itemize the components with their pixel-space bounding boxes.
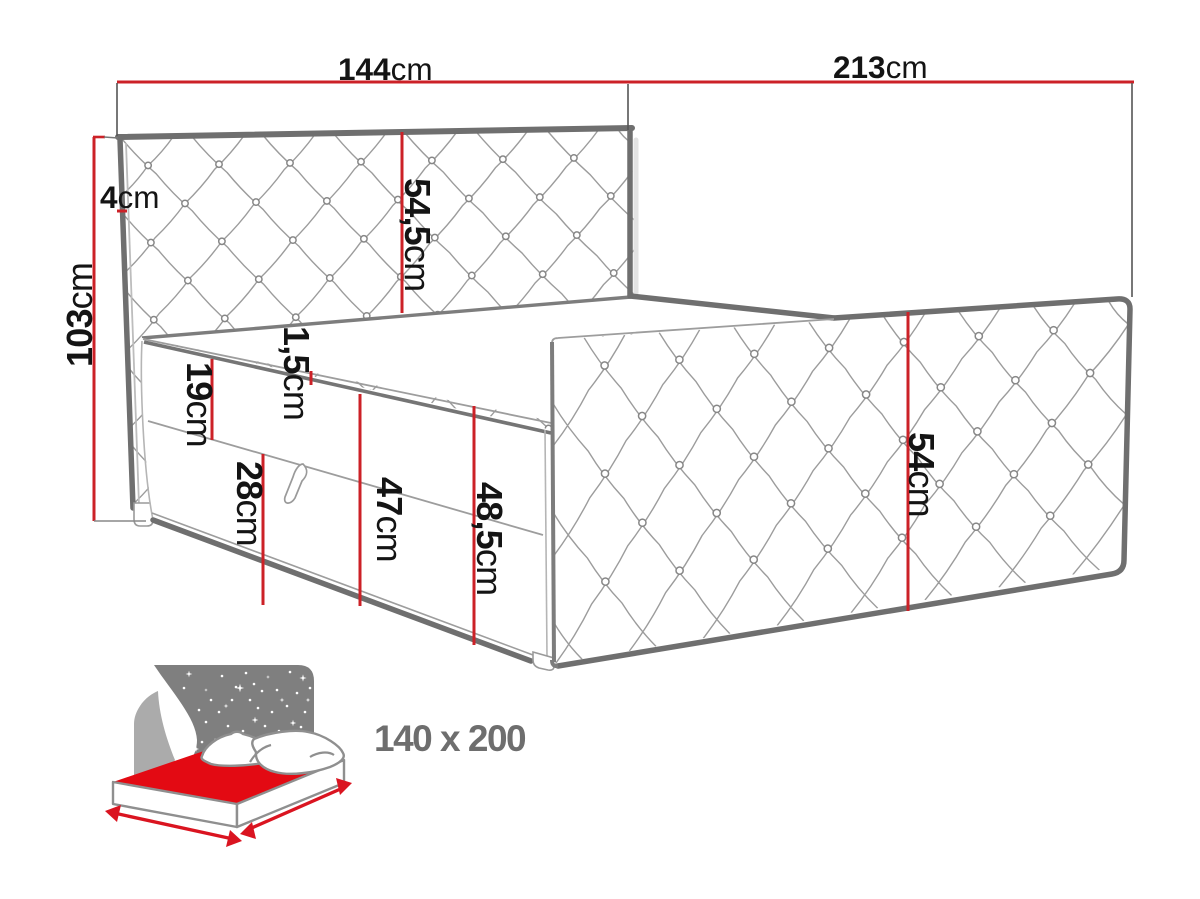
svg-text:48,5cm: 48,5cm — [469, 482, 510, 595]
svg-text:4cm: 4cm — [100, 179, 160, 215]
svg-text:19cm: 19cm — [179, 362, 220, 447]
svg-text:47cm: 47cm — [369, 477, 410, 562]
svg-text:28cm: 28cm — [229, 461, 270, 546]
svg-text:103cm: 103cm — [59, 263, 100, 367]
svg-text:54cm: 54cm — [901, 432, 942, 517]
svg-text:1,5cm: 1,5cm — [276, 326, 317, 420]
svg-text:144cm: 144cm — [338, 51, 433, 87]
svg-text:140 x 200: 140 x 200 — [374, 718, 526, 759]
svg-text:213cm: 213cm — [833, 49, 928, 85]
svg-text:54,5cm: 54,5cm — [397, 178, 438, 291]
